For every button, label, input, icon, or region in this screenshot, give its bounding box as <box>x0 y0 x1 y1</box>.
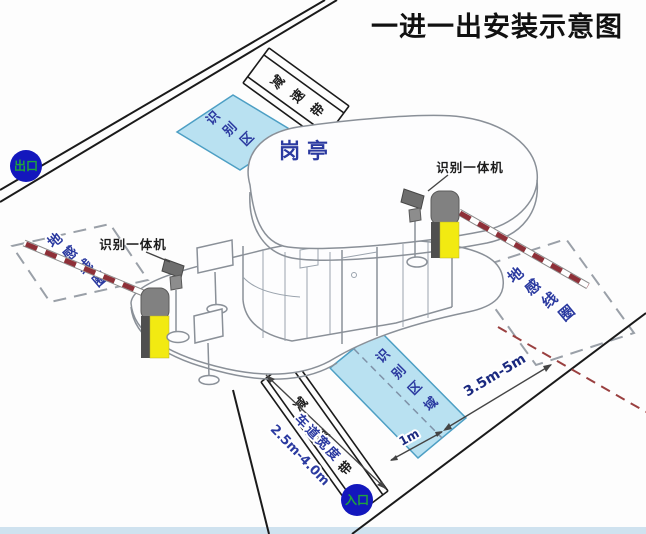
diagram-title: 一进一出安装示意图 <box>371 11 623 43</box>
barrier-gate-exit <box>24 243 169 358</box>
barrier-machine-cap <box>431 191 459 225</box>
camera-bracket <box>409 208 421 222</box>
sign-base <box>199 376 219 385</box>
barrier-machine-side <box>431 222 440 258</box>
barrier-machine-cap <box>141 288 169 320</box>
exit-badge-label: 出口 <box>14 158 38 173</box>
ground-loop-char: 地 <box>44 230 66 252</box>
entrance-badge-label: 入口 <box>345 493 369 507</box>
barrier-machine-front <box>440 222 459 258</box>
diagram-canvas: 减 速 带 识 别 区 域 地 感 线 圈 地 感 线 圈 识 别 区 域 <box>0 0 646 534</box>
entry-lane-edge-inner <box>233 390 269 534</box>
sign-pole <box>208 343 209 377</box>
speed-bump-char: 速 <box>288 86 309 106</box>
speed-bump-char: 带 <box>308 100 329 120</box>
bottom-strip <box>0 527 646 534</box>
installation-diagram: 减 速 带 识 别 区 域 地 感 线 圈 地 感 线 圈 识 别 区 域 <box>0 0 646 534</box>
ground-loop-char: 圈 <box>555 301 578 324</box>
sign-pole <box>215 272 216 306</box>
camera-bracket <box>170 275 182 290</box>
exit-badge: 出口 <box>10 150 42 182</box>
camera-label: 识别一体机 <box>436 160 504 175</box>
label-leader-line <box>146 252 170 262</box>
entrance-badge: 入口 <box>341 484 373 516</box>
camera-label: 识别一体机 <box>99 237 167 252</box>
guard-booth-label: 岗亭 <box>279 139 335 163</box>
barrier-machine-side <box>141 316 150 358</box>
guard-booth-roof: 岗亭 <box>248 115 537 260</box>
camera-base <box>167 332 189 343</box>
barrier-machine-front <box>150 316 169 358</box>
camera-base <box>407 257 427 267</box>
speed-bump-char: 带 <box>336 458 357 478</box>
dimension-value: 3.5m-5m <box>461 351 529 401</box>
speed-bump-char: 减 <box>268 72 289 92</box>
booth-desk <box>300 247 318 268</box>
